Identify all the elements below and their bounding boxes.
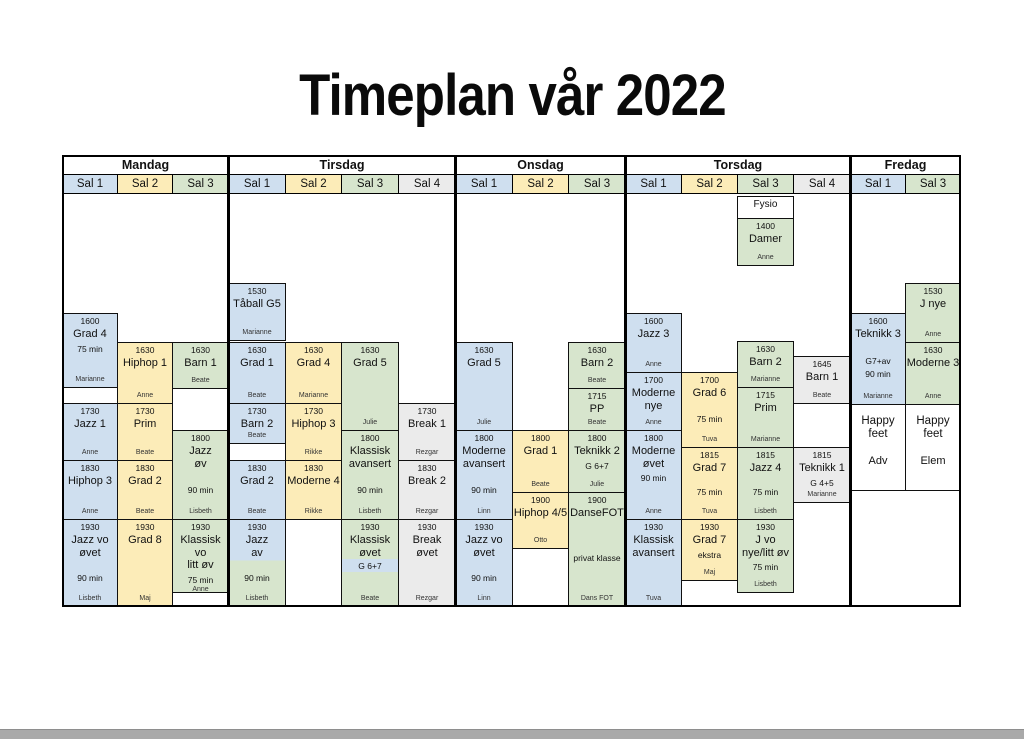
cell-time: 1715	[588, 389, 607, 402]
cell-time: 1700	[644, 373, 663, 386]
schedule-cell: 1730PrimBeate	[117, 403, 173, 461]
schedule-cell: 1800Moderne øvet90 minAnne	[625, 430, 682, 520]
cell-sub: G 6+7	[342, 559, 398, 572]
schedule-cell: 1930Grad 8Maj	[117, 519, 173, 607]
sal-header: Sal 3	[905, 174, 961, 194]
schedule-cell: 1900DanseFOTprivat klasseDans FOT	[568, 492, 626, 607]
cell-sub: G 4+5	[810, 475, 833, 488]
cell-time: 1530	[248, 284, 267, 297]
schedule-cell: 1930Break øvetRezgar	[398, 519, 456, 607]
cell-instructor: Maj	[704, 568, 715, 580]
day-header: Onsdag	[455, 155, 626, 175]
cell-instructor: Julie	[363, 418, 377, 430]
page-title: Timeplan vår 2022	[0, 66, 1024, 126]
schedule-cell: 1715PPBeate	[568, 388, 626, 431]
cell-time: 1930	[418, 520, 437, 533]
cell-instructor: Julie	[477, 418, 491, 430]
cell-instructor: Lisbeth	[79, 594, 102, 606]
cell-instructor: Marianne	[299, 391, 328, 403]
cell-time: 1830	[304, 461, 323, 474]
cell-title: Damer	[749, 232, 782, 246]
cell-sub: 75 min	[697, 411, 723, 424]
sal-header: Sal 1	[625, 174, 682, 194]
schedule-cell: 1730Break 1Rezgar	[398, 403, 456, 461]
cell-sub: 75 min	[188, 572, 214, 585]
cell-instructor: Beate	[136, 448, 154, 460]
cell-title: Klassisk avansert	[349, 444, 391, 470]
schedule-cell: 1530Tåball G5Marianne	[228, 283, 286, 341]
cell-instructor: Otto	[534, 536, 547, 548]
cell-sub: 90 min	[641, 470, 667, 483]
schedule-cell: 1600Grad 475 minMarianne	[62, 313, 118, 388]
cell-time: 1800	[588, 431, 607, 444]
cell-instructor: Dans FOT	[581, 594, 613, 606]
cell-title: Teknikk 2	[574, 444, 620, 458]
cell-instructor: Tuva	[646, 594, 661, 606]
sal-header: Sal 4	[793, 174, 851, 194]
cell-time: 1830	[248, 461, 267, 474]
cell-instructor: Marianne	[242, 328, 271, 340]
cell-instructor: Rezgar	[416, 448, 439, 460]
cell-title: Jazz av	[246, 533, 269, 559]
cell-title: Moderne avansert	[462, 444, 505, 470]
cell-title: Barn 1	[806, 370, 838, 384]
bottom-bar	[0, 729, 1024, 739]
cell-time: 1630	[756, 342, 775, 355]
schedule-cell: 1800Teknikk 2G 6+7Julie	[568, 430, 626, 493]
cell-title: Klassisk vo litt øv	[173, 533, 228, 572]
cell-time: 1630	[924, 343, 943, 356]
cell-title: Grad 6	[693, 386, 727, 400]
schedule-cell: 1930Jazz av90 minLisbeth	[228, 519, 286, 607]
cell-instructor: Anne	[645, 418, 661, 430]
schedule-cell: 1700Moderne nyeAnne	[625, 372, 682, 431]
cell-instructor: Marianne	[807, 490, 836, 502]
cell-sub: Adv	[869, 456, 888, 466]
cell-instructor: Anne	[645, 360, 661, 372]
schedule-cell: 1930Grad 7ekstraMaj	[681, 519, 738, 581]
cell-instructor: Lisbeth	[754, 507, 777, 519]
cell-instructor: Lisbeth	[359, 507, 382, 519]
cell-title: Grad 5	[353, 356, 387, 370]
cell-title: Moderne nye	[632, 386, 675, 412]
cell-instructor: Rikke	[305, 507, 323, 519]
cell-title: J vo nye/litt øv	[742, 533, 789, 559]
cell-title: Prim	[754, 401, 777, 415]
cell-instructor: Rezgar	[416, 507, 439, 519]
cell-instructor: Marianne	[751, 375, 780, 387]
cell-time: 1600	[81, 314, 100, 327]
cell-title: Moderne 4	[287, 474, 340, 488]
cell-time: 1730	[81, 404, 100, 417]
sal-header: Sal 2	[512, 174, 569, 194]
cell-time: 1730	[418, 404, 437, 417]
cell-instructor: Anne	[82, 507, 98, 519]
day-separator	[624, 155, 627, 607]
cell-time: 1930	[81, 520, 100, 533]
cell-sub: 90 min	[357, 482, 383, 495]
schedule-cell: 1730Jazz 1Anne	[62, 403, 118, 461]
schedule-cell: 1630Grad 1Beate	[228, 342, 286, 404]
cell-time: 1600	[644, 314, 663, 327]
sal-header: Sal 3	[341, 174, 399, 194]
cell-time: 1730	[248, 404, 267, 417]
schedule-cell: 1530J nyeAnne	[905, 283, 961, 343]
cell-title: Klassisk avansert	[632, 533, 674, 559]
schedule-cell: Fysio	[737, 196, 794, 219]
cell-title: Grad 1	[524, 444, 558, 458]
cell-time: 1800	[191, 431, 210, 444]
cell-title: Happy feet	[851, 405, 905, 440]
schedule-cell: Happy feetElem	[905, 404, 961, 491]
day-separator	[227, 155, 230, 607]
cell-title: Break 2	[408, 474, 446, 488]
cell-instructor: Maj	[139, 594, 150, 606]
schedule-cell: 1930Klassisk avansertTuva	[625, 519, 682, 607]
cell-instructor: Anne	[137, 391, 153, 403]
cell-instructor: Anne	[82, 448, 98, 460]
schedule-cell: 1830Grad 2Beate	[228, 460, 286, 520]
cell-time: 1900	[588, 493, 607, 506]
cell-instructor: Beate	[588, 376, 606, 388]
cell-instructor: Marianne	[75, 375, 104, 387]
empty-cell	[172, 592, 229, 607]
cell-instructor: Lisbeth	[246, 594, 269, 606]
sal-header: Sal 1	[228, 174, 286, 194]
cell-instructor: Lisbeth	[754, 580, 777, 592]
cell-time: 1930	[644, 520, 663, 533]
timetable-page: Timeplan vår 2022 1600Grad 475 minMarian…	[0, 0, 1024, 739]
cell-title: Jazz øv	[189, 444, 212, 470]
cell-instructor: Rikke	[305, 448, 323, 460]
cell-title: Prim	[134, 417, 157, 431]
cell-instructor: Beate	[813, 391, 831, 403]
cell-instructor: Rezgar	[416, 594, 439, 606]
cell-sub: 75 min	[697, 484, 723, 497]
cell-instructor: Beate	[531, 480, 549, 492]
cell-instructor: Beate	[248, 507, 266, 519]
cell-instructor: Beate	[248, 391, 266, 403]
schedule-cell: 1730Barn 2Beate	[228, 403, 286, 444]
schedule-cell: 1900Hiphop 4/5Otto	[512, 492, 569, 549]
sal-header: Sal 2	[117, 174, 173, 194]
cell-time: 1930	[700, 520, 719, 533]
cell-time: 1930	[136, 520, 155, 533]
cell-time: 1930	[191, 520, 210, 533]
cell-instructor: Beate	[361, 594, 379, 606]
schedule-cell: 1630Grad 5Julie	[455, 342, 513, 431]
day-separator	[849, 155, 852, 607]
schedule-cell: 1600Jazz 3Anne	[625, 313, 682, 373]
schedule-cell: 1630Hiphop 1Anne	[117, 342, 173, 404]
cell-title: Barn 2	[749, 355, 781, 369]
empty-cell	[62, 387, 118, 404]
cell-instructor: Linn	[477, 507, 490, 519]
cell-time: 1930	[361, 520, 380, 533]
schedule-cell: Happy feetAdv	[850, 404, 906, 491]
sal-header: Sal 1	[62, 174, 118, 194]
cell-time: 1715	[756, 388, 775, 401]
cell-title: Teknikk 1	[799, 461, 845, 475]
schedule-cell: 1800Jazz øv90 minLisbeth	[172, 430, 229, 520]
cell-time: 1930	[475, 520, 494, 533]
cell-time: 1645	[813, 357, 832, 370]
sal-header: Sal 4	[398, 174, 456, 194]
cell-title: Grad 2	[240, 474, 274, 488]
schedule-cell: 1830Moderne 4Rikke	[285, 460, 342, 520]
cell-instructor: Tuva	[702, 435, 717, 447]
cell-sub: G7+av	[865, 353, 890, 366]
cell-time: 1730	[136, 404, 155, 417]
cell-instructor: Beate	[248, 431, 266, 443]
cell-title: Hiphop 3	[68, 474, 112, 488]
cell-time: 1830	[81, 461, 100, 474]
day-header: Torsdag	[625, 155, 851, 175]
cell-time: 1530	[924, 284, 943, 297]
cell-title: Fysio	[754, 197, 778, 212]
cell-title: Grad 4	[297, 356, 331, 370]
cell-title: Jazz 4	[750, 461, 782, 475]
cell-title: Grad 1	[240, 356, 274, 370]
schedule-cell: 1815Grad 775 minTuva	[681, 447, 738, 520]
cell-title: Happy feet	[906, 405, 960, 440]
cell-time: 1815	[700, 448, 719, 461]
schedule-cell: 1630Grad 5Julie	[341, 342, 399, 431]
cell-instructor: Beate	[191, 376, 209, 388]
cell-title: Grad 7	[693, 461, 727, 475]
cell-title: Barn 2	[581, 356, 613, 370]
cell-instructor: Linn	[477, 594, 490, 606]
schedule-cell: 1830Hiphop 3Anne	[62, 460, 118, 520]
cell-sub: G 6+7	[585, 458, 608, 471]
cell-instructor: Lisbeth	[189, 507, 212, 519]
cell-title: Break 1	[408, 417, 446, 431]
cell-title: Grad 5	[467, 356, 501, 370]
schedule-cell: 1930Jazz vo øvet90 minLisbeth	[62, 519, 118, 607]
cell-time: 1830	[418, 461, 437, 474]
cell-sub: Elem	[920, 456, 945, 466]
cell-time: 1630	[136, 343, 155, 356]
day-header: Mandag	[62, 155, 229, 175]
cell-sub: 75 min	[77, 341, 103, 354]
cell-title: Tåball G5	[233, 297, 281, 311]
cell-time: 1800	[475, 431, 494, 444]
sal-header: Sal 3	[737, 174, 794, 194]
cell-instructor: Tuva	[702, 507, 717, 519]
cell-title: Moderne 3	[907, 356, 960, 370]
cell-title: Hiphop 3	[291, 417, 335, 431]
cell-instructor: Anne	[645, 507, 661, 519]
cell-title: Jazz 1	[74, 417, 106, 431]
schedule-cell: 1600Teknikk 3G7+av90 minMarianne	[850, 313, 906, 405]
cell-title: Grad 2	[128, 474, 162, 488]
cell-sub: 90 min	[865, 366, 891, 379]
cell-title: Grad 4	[73, 327, 107, 341]
cell-sub: 90 min	[244, 570, 270, 583]
sal-header: Sal 3	[568, 174, 626, 194]
cell-time: 1600	[869, 314, 888, 327]
cell-time: 1815	[813, 448, 832, 461]
cell-time: 1930	[756, 520, 775, 533]
schedule-cell: 1715PrimMarianne	[737, 387, 794, 448]
sal-header: Sal 1	[455, 174, 513, 194]
schedule-cell: 1630Barn 1Beate	[172, 342, 229, 389]
cell-title: DanseFOT	[570, 506, 624, 520]
day-header: Fredag	[850, 155, 961, 175]
cell-time: 1900	[531, 493, 550, 506]
cell-time: 1730	[304, 404, 323, 417]
cell-instructor: Beate	[588, 418, 606, 430]
schedule-cell: 1630Moderne 3Anne	[905, 342, 961, 405]
schedule-cell: 1930J vo nye/litt øv75 minLisbeth	[737, 519, 794, 593]
sal-header: Sal 2	[681, 174, 738, 194]
cell-instructor: Anne	[925, 392, 941, 404]
cell-time: 1630	[361, 343, 380, 356]
cell-sub: 75 min	[753, 484, 779, 497]
schedule-cell: 1930Klassisk øvetG 6+7Beate	[341, 519, 399, 607]
cell-instructor: Marianne	[751, 435, 780, 447]
cell-instructor: Anne	[757, 253, 773, 265]
cell-title: Barn 1	[184, 356, 216, 370]
schedule-cell: 1815Teknikk 1G 4+5Marianne	[793, 447, 851, 503]
cell-time: 1800	[644, 431, 663, 444]
cell-title: Teknikk 3	[855, 327, 901, 341]
cell-time: 1630	[248, 343, 267, 356]
cell-time: 1700	[700, 373, 719, 386]
cell-time: 1800	[531, 431, 550, 444]
cell-time: 1630	[304, 343, 323, 356]
sal-header: Sal 2	[285, 174, 342, 194]
cell-sub: 90 min	[77, 570, 103, 583]
cell-instructor: Julie	[590, 480, 604, 492]
cell-time: 1830	[136, 461, 155, 474]
cell-title: Hiphop 1	[123, 356, 167, 370]
schedule-cell: 1800Moderne avansert90 minLinn	[455, 430, 513, 520]
cell-title: Jazz 3	[638, 327, 670, 341]
cell-title: Break øvet	[413, 533, 442, 559]
cell-title: Moderne øvet	[632, 444, 675, 470]
schedule-cell: 1830Grad 2Beate	[117, 460, 173, 520]
cell-title: Grad 7	[693, 533, 727, 547]
cell-sub: 90 min	[471, 570, 497, 583]
cell-title: Hiphop 4/5	[514, 506, 567, 520]
cell-time: 1630	[588, 343, 607, 356]
cell-title: Jazz vo øvet	[71, 533, 108, 559]
schedule-cell: 1730Hiphop 3Rikke	[285, 403, 342, 461]
cell-sub: 75 min	[753, 559, 779, 572]
cell-sub: 90 min	[471, 482, 497, 495]
cell-instructor: Beate	[136, 507, 154, 519]
schedule-cell: 1400DamerAnne	[737, 218, 794, 266]
cell-time: 1815	[756, 448, 775, 461]
schedule-cell: 1800Klassisk avansert90 minLisbeth	[341, 430, 399, 520]
schedule-cell: 1815Jazz 475 minLisbeth	[737, 447, 794, 520]
cell-title: J nye	[920, 297, 946, 311]
cell-title: Jazz vo øvet	[465, 533, 502, 559]
cell-time: 1400	[756, 219, 775, 232]
cell-instructor: Anne	[925, 330, 941, 342]
sal-header: Sal 3	[172, 174, 229, 194]
sal-header: Sal 1	[850, 174, 906, 194]
schedule-cell: 1700Grad 675 minTuva	[681, 372, 738, 448]
cell-sub: ekstra	[698, 547, 721, 560]
cell-time: 1800	[361, 431, 380, 444]
cell-title: Barn 2	[241, 417, 273, 431]
cell-title: Klassisk øvet	[350, 533, 390, 559]
cell-time: 1630	[475, 343, 494, 356]
cell-instructor: Marianne	[863, 392, 892, 404]
schedule-cell: 1830Break 2Rezgar	[398, 460, 456, 520]
cell-title: Grad 8	[128, 533, 162, 547]
empty-cell	[228, 443, 286, 461]
schedule-cell: 1930Jazz vo øvet90 minLinn	[455, 519, 513, 607]
schedule-cell: 1800Grad 1Beate	[512, 430, 569, 493]
cell-sub: 90 min	[188, 482, 214, 495]
schedule-cell: 1645Barn 1Beate	[793, 356, 851, 404]
cell-time: 1630	[191, 343, 210, 356]
cell-title: PP	[590, 402, 605, 416]
cell-sub: privat klasse	[573, 550, 620, 563]
schedule-cell: 1630Barn 2Marianne	[737, 341, 794, 388]
schedule-cell: 1630Grad 4Marianne	[285, 342, 342, 404]
cell-time: 1930	[248, 520, 267, 533]
day-separator	[454, 155, 457, 607]
day-header: Tirsdag	[228, 155, 456, 175]
schedule-cell: 1630Barn 2Beate	[568, 342, 626, 389]
schedule-cell: 1930Klassisk vo litt øv75 minAnne	[172, 519, 229, 593]
